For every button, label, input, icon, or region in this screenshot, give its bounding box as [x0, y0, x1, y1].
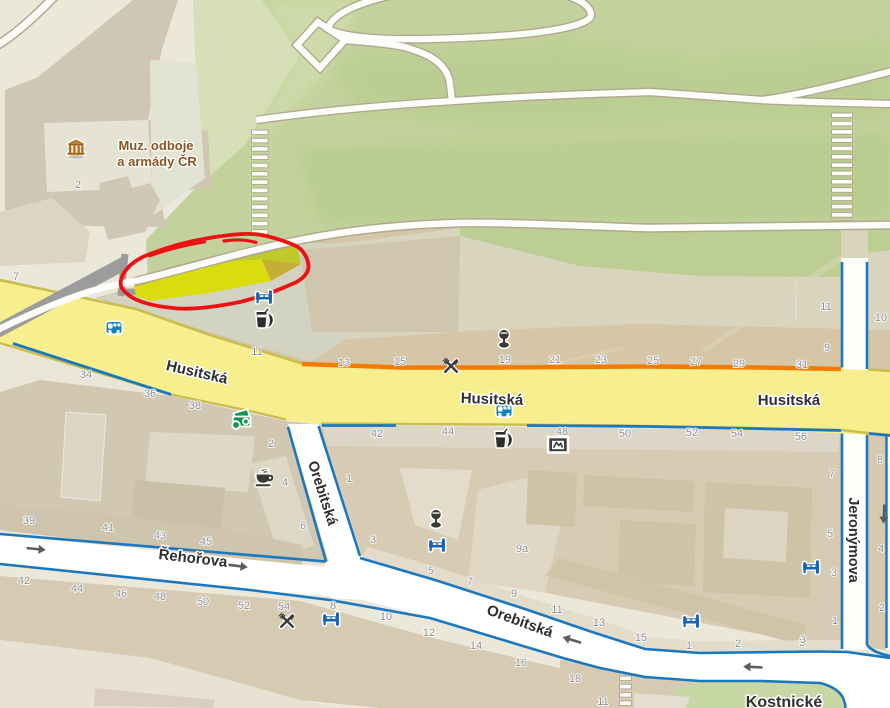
svg-text:7: 7: [829, 468, 835, 480]
svg-text:42: 42: [18, 575, 30, 587]
svg-text:11: 11: [820, 301, 831, 313]
svg-text:48: 48: [154, 591, 166, 603]
svg-text:5: 5: [827, 528, 833, 540]
svg-text:10: 10: [380, 611, 392, 623]
svg-text:56: 56: [795, 431, 807, 443]
svg-text:29: 29: [733, 358, 745, 370]
svg-text:25: 25: [647, 355, 659, 367]
svg-text:16: 16: [515, 657, 527, 669]
svg-text:Husitská: Husitská: [758, 392, 821, 409]
svg-text:46: 46: [115, 588, 127, 600]
svg-text:31: 31: [796, 359, 808, 371]
svg-text:54: 54: [278, 601, 290, 613]
svg-text:7: 7: [13, 271, 19, 283]
svg-text:8: 8: [877, 454, 883, 466]
svg-text:3: 3: [831, 567, 837, 579]
svg-text:4: 4: [878, 543, 884, 555]
svg-text:9: 9: [511, 588, 517, 600]
svg-text:54: 54: [731, 428, 743, 440]
svg-text:50: 50: [619, 428, 631, 440]
svg-text:44: 44: [71, 583, 83, 595]
svg-text:5: 5: [428, 565, 434, 577]
svg-text:9a: 9a: [516, 543, 529, 555]
svg-text:23: 23: [595, 354, 607, 366]
svg-text:34: 34: [80, 369, 92, 381]
svg-text:15: 15: [635, 632, 647, 644]
svg-text:38: 38: [189, 400, 201, 412]
svg-text:52: 52: [686, 427, 698, 439]
svg-text:2: 2: [268, 438, 274, 450]
svg-text:48: 48: [556, 426, 568, 438]
svg-text:1: 1: [346, 473, 352, 485]
svg-text:4: 4: [282, 477, 288, 489]
svg-text:3: 3: [370, 534, 376, 546]
svg-text:1: 1: [832, 615, 838, 627]
svg-text:3: 3: [800, 634, 806, 646]
svg-text:45: 45: [200, 536, 212, 548]
svg-text:Kostnické: Kostnické: [746, 694, 823, 708]
svg-text:13: 13: [338, 357, 350, 369]
svg-text:a armády ČR: a armády ČR: [117, 154, 197, 169]
svg-text:43: 43: [154, 530, 166, 542]
svg-text:11: 11: [551, 604, 562, 616]
svg-text:Husitská: Husitská: [460, 390, 524, 409]
svg-text:Muz. odboje: Muz. odboje: [118, 138, 193, 153]
svg-text:2: 2: [75, 179, 81, 191]
svg-text:27: 27: [690, 356, 702, 368]
svg-text:39: 39: [23, 515, 35, 527]
svg-text:52: 52: [238, 600, 250, 612]
svg-text:6: 6: [300, 520, 306, 532]
svg-text:11: 11: [251, 346, 262, 358]
svg-text:2: 2: [879, 602, 885, 614]
svg-text:9: 9: [824, 342, 830, 354]
svg-text:11: 11: [597, 696, 608, 708]
svg-text:10: 10: [875, 312, 887, 324]
svg-text:14: 14: [470, 640, 482, 652]
svg-text:21: 21: [549, 354, 561, 366]
svg-text:7: 7: [467, 576, 473, 588]
svg-text:50: 50: [197, 596, 209, 608]
svg-text:18: 18: [569, 673, 581, 685]
svg-text:42: 42: [371, 428, 383, 440]
svg-text:2: 2: [735, 638, 741, 650]
svg-text:41: 41: [102, 522, 114, 534]
svg-text:8: 8: [330, 600, 336, 612]
svg-text:12: 12: [423, 627, 435, 639]
svg-text:15: 15: [394, 356, 406, 368]
svg-text:19: 19: [499, 354, 511, 366]
svg-text:1: 1: [686, 640, 692, 652]
svg-text:13: 13: [593, 617, 605, 629]
svg-text:36: 36: [144, 388, 156, 400]
svg-text:Jeronýmova: Jeronýmova: [845, 497, 861, 583]
svg-text:44: 44: [442, 426, 454, 438]
